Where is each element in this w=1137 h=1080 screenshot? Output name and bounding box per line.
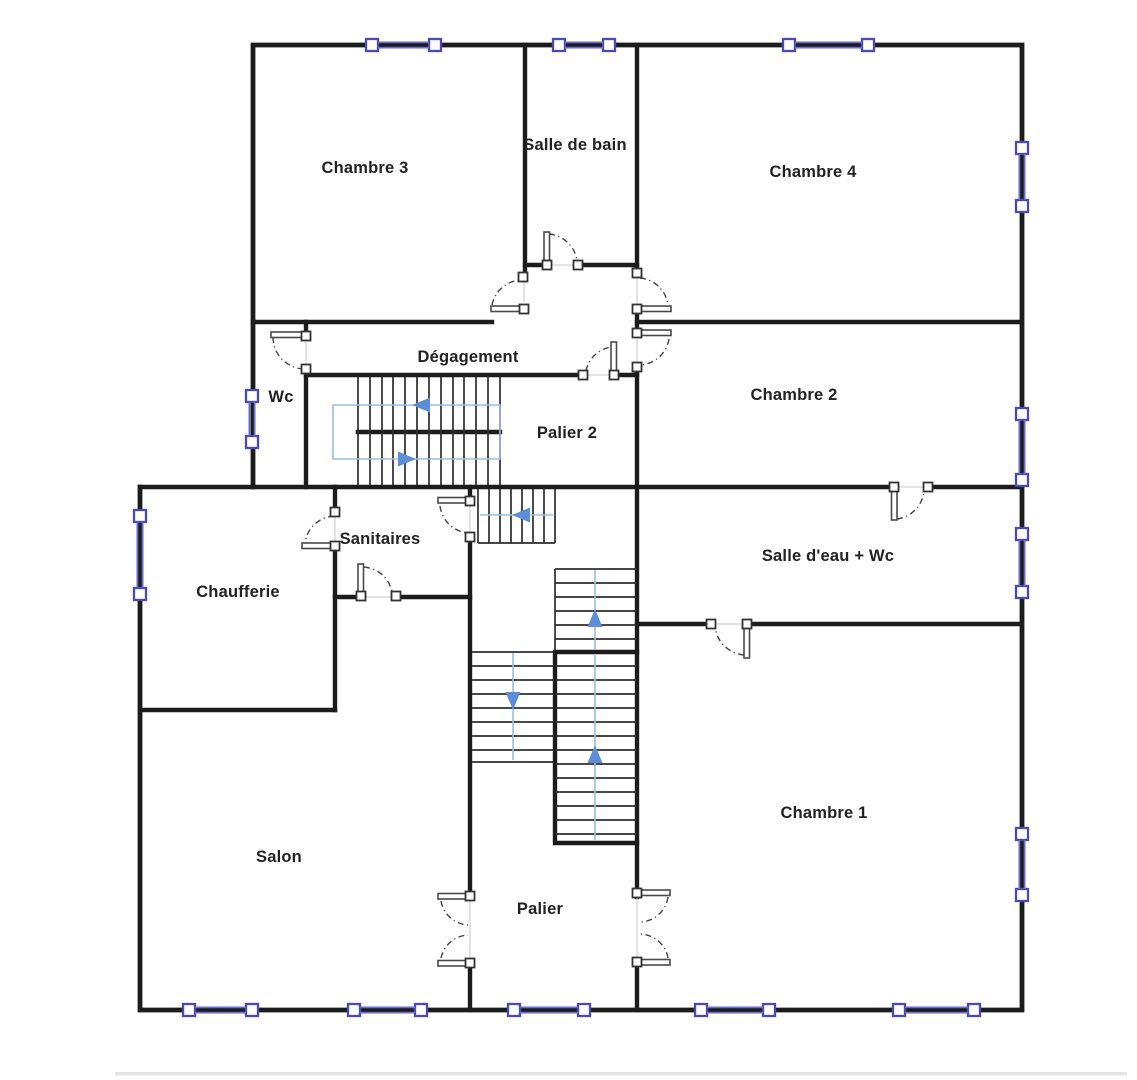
window-frames [134,39,1028,1016]
door-symbol-salle-d-eau-north [890,483,933,521]
arrow-up-left-icon [412,398,430,413]
door-symbol-salle-d-eau-south [707,620,752,659]
room-label-chambre-2: Chambre 2 [750,386,837,404]
stairs-mid-flight [555,569,637,650]
floor-plan-canvas: Chambre 3 Salle de bain Chambre 4 Dégage… [0,0,1137,1080]
arrow-left-icon [512,508,530,523]
room-label-sanitaires: Sanitaires [340,530,421,548]
door-symbol-chaufferie [302,508,340,551]
room-label-wc: Wc [268,388,293,406]
arrow-up-right-icon [398,452,416,467]
door-symbol-palier-2 [579,342,619,380]
door-symbol-chambre-4 [633,269,672,314]
room-label-degagement: Dégagement [417,348,518,366]
door-symbol-sanitaires-south [357,564,401,601]
room-label-chaufferie: Chaufferie [196,583,280,601]
room-label-chambre-4: Chambre 4 [769,163,857,181]
door-symbol-chambre-3 [491,273,529,314]
room-label-salle-d-eau-wc: Salle d'eau + Wc [762,547,894,565]
door-symbol-wc [271,332,311,374]
double-door-salon [438,892,475,968]
room-label-chambre-1: Chambre 1 [780,804,867,822]
double-door-chambre-1 [633,889,671,967]
arrow-up-main-icon [588,745,603,763]
scan-artifact-line [115,1072,1127,1076]
door-symbols [271,232,933,968]
room-label-palier: Palier [517,900,564,918]
floor-plan-page: Chambre 3 Salle de bain Chambre 4 Dégage… [0,0,1137,1080]
room-label-salle-de-bain: Salle de bain [523,136,626,154]
room-label-chambre-3: Chambre 3 [321,159,408,177]
window-rails [137,42,1024,1012]
room-label-salon: Salon [256,848,302,866]
door-symbol-salle-de-bain [543,232,583,270]
room-label-palier-2: Palier 2 [537,424,597,442]
door-symbol-sanitaires-stairs [438,497,475,542]
window-symbols [134,39,1028,1016]
door-symbol-chambre-2 [633,329,672,372]
